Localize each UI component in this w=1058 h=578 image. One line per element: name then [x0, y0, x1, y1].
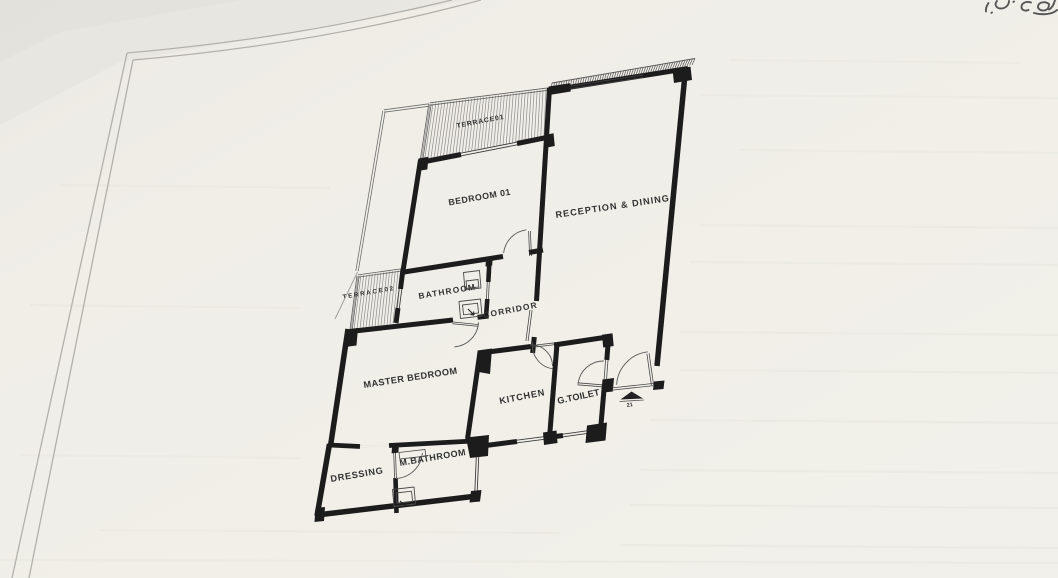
- svg-text:21: 21: [626, 402, 633, 409]
